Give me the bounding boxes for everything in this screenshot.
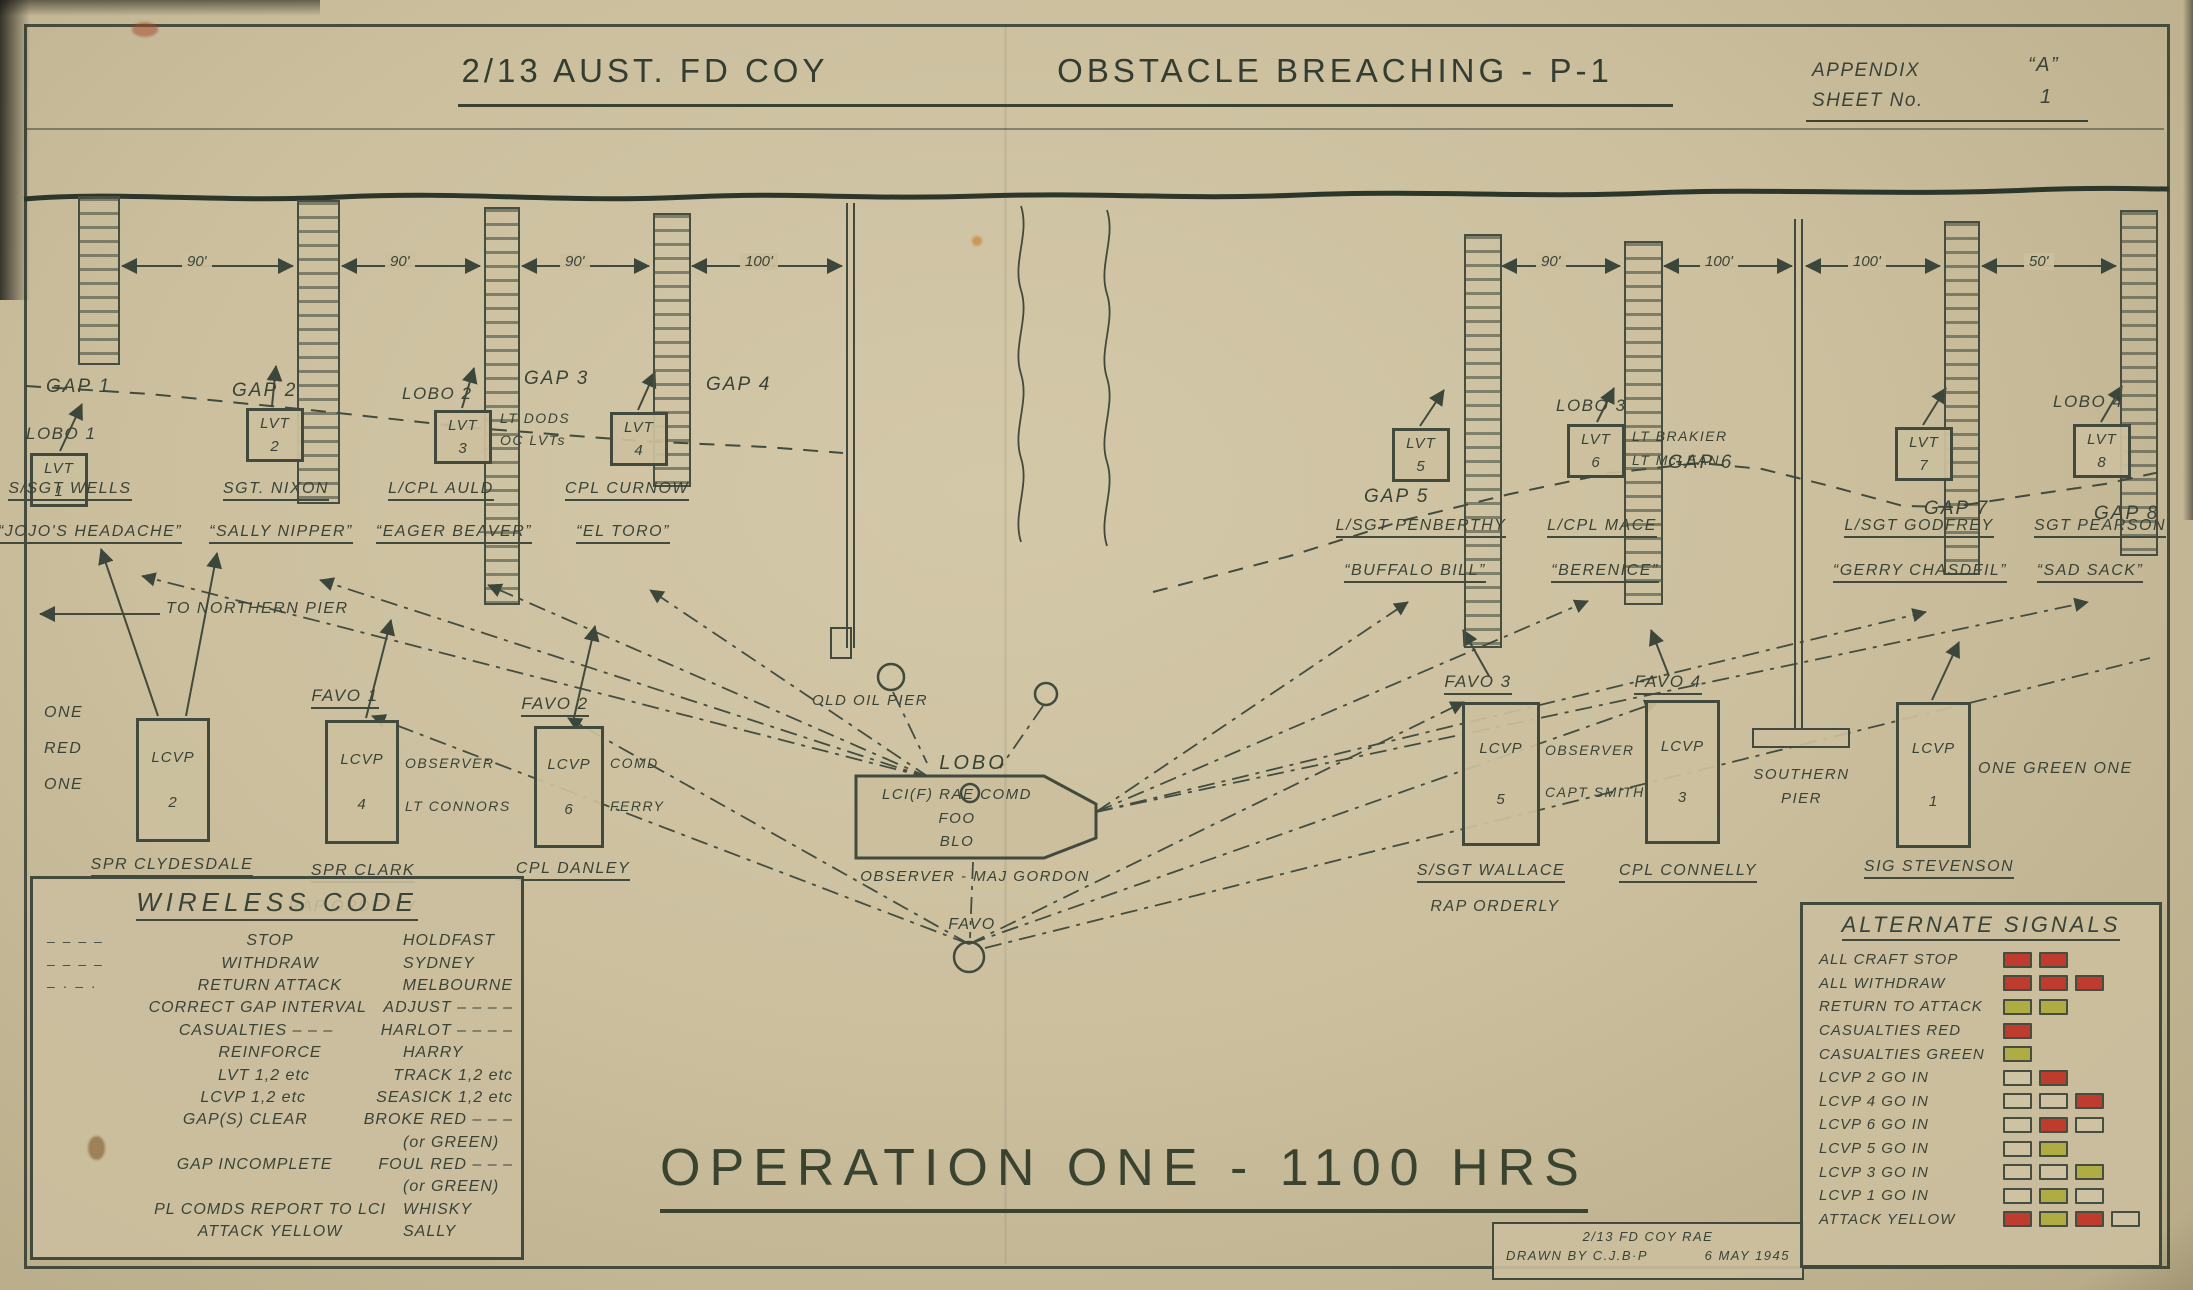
lvt-box-6: LVT6 — [1567, 424, 1625, 478]
lcvp-1-crew: SIG STEVENSON — [1819, 858, 2059, 879]
lvt-8-crew: SGT PEARSON — [1980, 517, 2193, 538]
lvt-box-8: LVT8 — [2073, 424, 2131, 478]
southern-pier-label-2: PIER — [1744, 790, 1859, 807]
scan-edge-shadow-left — [0, 0, 30, 300]
wireless-code-title: WIRELESS CODE — [33, 887, 521, 918]
signal-flag-yellow — [2075, 1164, 2104, 1180]
lobo-4-label: LOBO 4 — [2053, 392, 2123, 412]
signal-flag-white — [2003, 1188, 2032, 1204]
title-subject: OBSTACLE BREACHING - P-1 — [995, 52, 1675, 90]
signal-row: RETURN TO ATTACK — [1803, 995, 2159, 1019]
credit-unit: 2/13 FD COY RAE — [1494, 1229, 1802, 1244]
signal-flag-red — [2075, 1211, 2104, 1227]
scan-edge-shadow-right — [2183, 0, 2193, 520]
wireless-row: LVT 1,2 etcTRACK 1,2 etc — [47, 1064, 513, 1086]
lvt-6-nickname: “BERENICE” — [1485, 562, 1725, 583]
obstacle-bar-5 — [1464, 234, 1502, 648]
signal-flag-yellow — [2039, 1188, 2068, 1204]
lvt-6-note-1: LT BRAKIER — [1632, 428, 1728, 444]
signal-flag-red — [2003, 1023, 2032, 1039]
scan-edge-shadow-top — [0, 0, 320, 16]
gap-label-3: GAP 3 — [524, 368, 589, 390]
wireless-row: GAP(S) CLEARBROKE RED – – – — [47, 1109, 513, 1131]
favo-2-label: FAVO 2 — [500, 694, 610, 717]
wireless-row: LCVP 1,2 etcSEASICK 1,2 etc — [47, 1087, 513, 1109]
favo-3-label: FAVO 3 — [1423, 672, 1533, 695]
lvt-box-2: LVT2 — [246, 408, 304, 462]
appendix-label: APPENDIX — [1812, 60, 1920, 82]
signal-flags — [2003, 1093, 2149, 1109]
lobo-1-label: LOBO 1 — [26, 424, 96, 444]
signal-flag-white — [2111, 1211, 2140, 1227]
lcvp-6-side-1: COMD — [610, 755, 659, 771]
signal-flag-red — [2003, 975, 2032, 991]
lcvp-3-crew: CPL CONNELLY — [1568, 862, 1808, 883]
gap-label-2: GAP 2 — [232, 380, 297, 402]
distance-label: 90' — [182, 253, 212, 270]
lcvp-4-side-2: LT CONNORS — [405, 798, 511, 814]
lci-line-3: BLO — [862, 833, 1052, 850]
lvt-box-5: LVT5 — [1392, 428, 1450, 482]
lcvp-box-4: LCVP4 — [325, 720, 399, 844]
sheet-label: SHEET No. — [1812, 90, 1924, 112]
signal-flag-yellow — [2039, 1141, 2068, 1157]
signal-flags — [2003, 952, 2149, 968]
signal-flags — [2003, 1164, 2149, 1180]
obstacle-bar-1 — [78, 196, 120, 365]
signal-flag-yellow — [2003, 1046, 2032, 1062]
gap-label-1: GAP 1 — [46, 376, 111, 398]
lvt-box-4: LVT4 — [610, 412, 668, 466]
wireless-code-rows: – – – –STOPHOLDFAST – – – –WITHDRAWSYDNE… — [47, 930, 513, 1243]
gap-label-5: GAP 5 — [1364, 486, 1429, 508]
wireless-row: REINFORCEHARRY — [47, 1042, 513, 1064]
signal-row: CASUALTIES RED — [1803, 1019, 2159, 1043]
distance-label: 90' — [385, 253, 415, 270]
signal-row: LCVP 2 GO IN — [1803, 1066, 2159, 1090]
one-red-one-1: ONE — [44, 704, 83, 722]
lcvp-5-extra: RAP ORDERLY — [1375, 898, 1615, 916]
wireless-row: – – – –WITHDRAWSYDNEY — [47, 952, 513, 974]
obstacle-bar-3 — [484, 207, 520, 605]
lcvp-5-side-2: CAPT SMITH — [1545, 784, 1645, 800]
signal-row: LCVP 4 GO IN — [1803, 1090, 2159, 1114]
operation-title: OPERATION ONE - 1100 HRS — [660, 1138, 1580, 1198]
stain-mark — [88, 1136, 105, 1160]
signal-row: ALL WITHDRAW — [1803, 972, 2159, 996]
lobo-3-label: LOBO 3 — [1556, 396, 1626, 416]
wireless-row: CORRECT GAP INTERVALADJUST – – – – — [47, 997, 513, 1019]
signal-flag-red — [2075, 1093, 2104, 1109]
signal-row: LCVP 6 GO IN — [1803, 1113, 2159, 1137]
signal-flag-yellow — [2003, 999, 2032, 1015]
lcvp-5-side-1: OBSERVER — [1545, 742, 1635, 758]
signal-row: LCVP 5 GO IN — [1803, 1137, 2159, 1161]
lvt-4-nickname: “EL TORO” — [503, 523, 743, 544]
signal-row: CASUALTIES GREEN — [1803, 1042, 2159, 1066]
wireless-row: – – – –STOPHOLDFAST — [47, 930, 513, 952]
lci-line-2: FOO — [862, 810, 1052, 827]
one-red-one-2: RED — [44, 740, 82, 758]
signal-flags — [2003, 1188, 2149, 1204]
sheet-value: 1 — [2040, 86, 2053, 109]
fold-crease — [1004, 24, 1007, 1264]
title-underline — [458, 104, 1673, 107]
lci-line-1: LCI(F) RAE COMD — [862, 786, 1052, 803]
signal-flag-white — [2039, 1093, 2068, 1109]
distance-label: 100' — [740, 253, 778, 270]
obstacle-bar-6 — [1624, 241, 1663, 605]
signal-row: ALL CRAFT STOP — [1803, 948, 2159, 972]
signal-row: LCVP 1 GO IN — [1803, 1184, 2159, 1208]
distance-label: 100' — [1700, 253, 1738, 270]
signal-flag-red — [2039, 1117, 2068, 1133]
signal-flag-red — [2039, 1070, 2068, 1086]
wireless-row: ATTACK YELLOWSALLY — [47, 1221, 513, 1243]
signal-flags — [2003, 975, 2149, 991]
favo-4-label: FAVO 4 — [1613, 672, 1723, 695]
signal-flag-white — [2075, 1188, 2104, 1204]
signal-flag-yellow — [2039, 1211, 2068, 1227]
lvt-8-nickname: “SAD SACK” — [1970, 562, 2193, 583]
wireless-row: PL COMDS REPORT TO LCIWHISKY — [47, 1199, 513, 1221]
wireless-row: – · – ·RETURN ATTACKMELBOURNE — [47, 975, 513, 997]
southern-pier-label-1: SOUTHERN — [1744, 766, 1859, 783]
signal-flag-red — [2039, 952, 2068, 968]
signal-flag-red — [2039, 975, 2068, 991]
lvt-4-crew: CPL CURNOW — [507, 480, 747, 501]
lcvp-box-6: LCVP6 — [534, 726, 604, 848]
title-unit: 2/13 AUST. FD COY — [455, 52, 835, 90]
signal-flag-white — [2039, 1164, 2068, 1180]
signal-flag-white — [2003, 1070, 2032, 1086]
appendix-underline — [1806, 120, 2088, 122]
wireless-row: GAP INCOMPLETEFOUL RED – – – — [47, 1154, 513, 1176]
distance-label: 90' — [560, 253, 590, 270]
credit-drawn: DRAWN BY C.J.B·P6 MAY 1945 — [1506, 1248, 1790, 1263]
appendix-value: “A” — [2028, 54, 2059, 77]
signal-row: LCVP 3 GO IN — [1803, 1160, 2159, 1184]
stain-mark — [132, 22, 158, 37]
lcvp-box-3: LCVP3 — [1645, 700, 1720, 844]
lci-observer-note: OBSERVER - MAJ GORDON — [845, 868, 1105, 885]
wireless-row: (or GREEN) — [47, 1176, 513, 1198]
one-red-one-3: ONE — [44, 776, 83, 794]
lcvp-6-side-2: FERRY — [610, 798, 664, 814]
signal-flag-white — [2003, 1141, 2032, 1157]
wireless-code-panel: WIRELESS CODE – – – –STOPHOLDFAST – – – … — [30, 876, 524, 1260]
distance-label: 100' — [1848, 253, 1886, 270]
signal-flags — [2003, 1046, 2149, 1062]
signal-flags — [2003, 1023, 2149, 1039]
lcvp-4-side-1: OBSERVER — [405, 755, 495, 771]
stain-mark — [972, 236, 982, 246]
signal-flag-red — [2003, 952, 2032, 968]
signal-flag-red — [2003, 1211, 2032, 1227]
signal-flag-yellow — [2039, 999, 2068, 1015]
lvt-6-crew: L/CPL MACE — [1482, 517, 1722, 538]
header-rule — [26, 128, 2164, 130]
wireless-row: CASUALTIES – – –HARLOT – – – – — [47, 1020, 513, 1042]
signal-row: ATTACK YELLOW — [1803, 1208, 2159, 1232]
signal-flags — [2003, 1141, 2149, 1157]
signal-flag-red — [2075, 975, 2104, 991]
signal-flag-white — [2003, 1117, 2032, 1133]
lvt-3-note-1: LT DODS — [500, 410, 570, 426]
lcvp-box-1: LCVP1 — [1896, 702, 1971, 848]
northern-pier-note: TO NORTHERN PIER — [166, 600, 349, 618]
alternate-signals-panel: ALTERNATE SIGNALS ALL CRAFT STOP ALL WIT… — [1800, 902, 2162, 1268]
credit-date: 6 MAY 1945 — [1705, 1248, 1790, 1263]
gap-label-4: GAP 4 — [706, 374, 771, 396]
favo-1-label: FAVO 1 — [290, 686, 400, 709]
lvt-3-note-2: OC LVTs — [500, 432, 566, 448]
old-oil-pier-label: OLD OIL PIER — [785, 692, 955, 709]
alternate-signals-title: ALTERNATE SIGNALS — [1803, 912, 2159, 938]
lcvp-box-5: LCVP5 — [1462, 702, 1540, 846]
wireless-row: (or GREEN) — [47, 1132, 513, 1154]
signal-flags — [2003, 1117, 2149, 1133]
distance-label: 90' — [1536, 253, 1566, 270]
lvt-box-7: LVT7 — [1895, 427, 1953, 481]
signal-flags — [2003, 999, 2149, 1015]
distance-label: 50' — [2024, 253, 2054, 270]
signal-flag-white — [2003, 1164, 2032, 1180]
lvt-box-3: LVT3 — [434, 410, 492, 464]
signal-flags — [2003, 1070, 2149, 1086]
one-green-one-note: ONE GREEN ONE — [1978, 760, 2133, 778]
credit-box: 2/13 FD COY RAE DRAWN BY C.J.B·P6 MAY 19… — [1492, 1222, 1804, 1280]
signal-flag-white — [2003, 1093, 2032, 1109]
alternate-signals-rows: ALL CRAFT STOP ALL WITHDRAW RETURN TO AT… — [1803, 948, 2159, 1231]
signal-flags — [2003, 1211, 2149, 1227]
signal-flag-white — [2075, 1117, 2104, 1133]
lcvp-box-2: LCVP2 — [136, 718, 210, 842]
lvt-6-note-2: LT McLEAN — [1632, 452, 1720, 468]
favo-point-label: FAVO — [934, 916, 1010, 934]
lobo-2-label: LOBO 2 — [402, 384, 472, 404]
scanned-obstacle-breaching-diagram: 2/13 AUST. FD COY OBSTACLE BREACHING - P… — [0, 0, 2193, 1290]
